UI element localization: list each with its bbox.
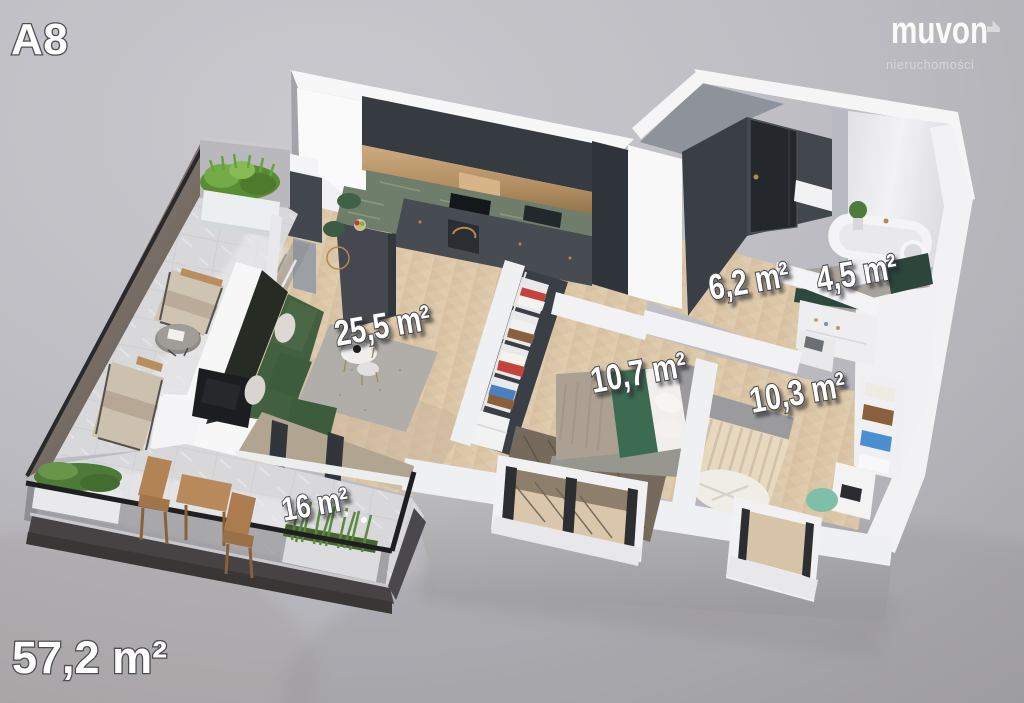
- svg-text:nieruchomości: nieruchomości: [886, 58, 974, 72]
- svg-text:57,2 m²: 57,2 m²: [12, 632, 167, 683]
- svg-text:muvon: muvon: [891, 10, 988, 52]
- svg-text:A8: A8: [11, 15, 68, 64]
